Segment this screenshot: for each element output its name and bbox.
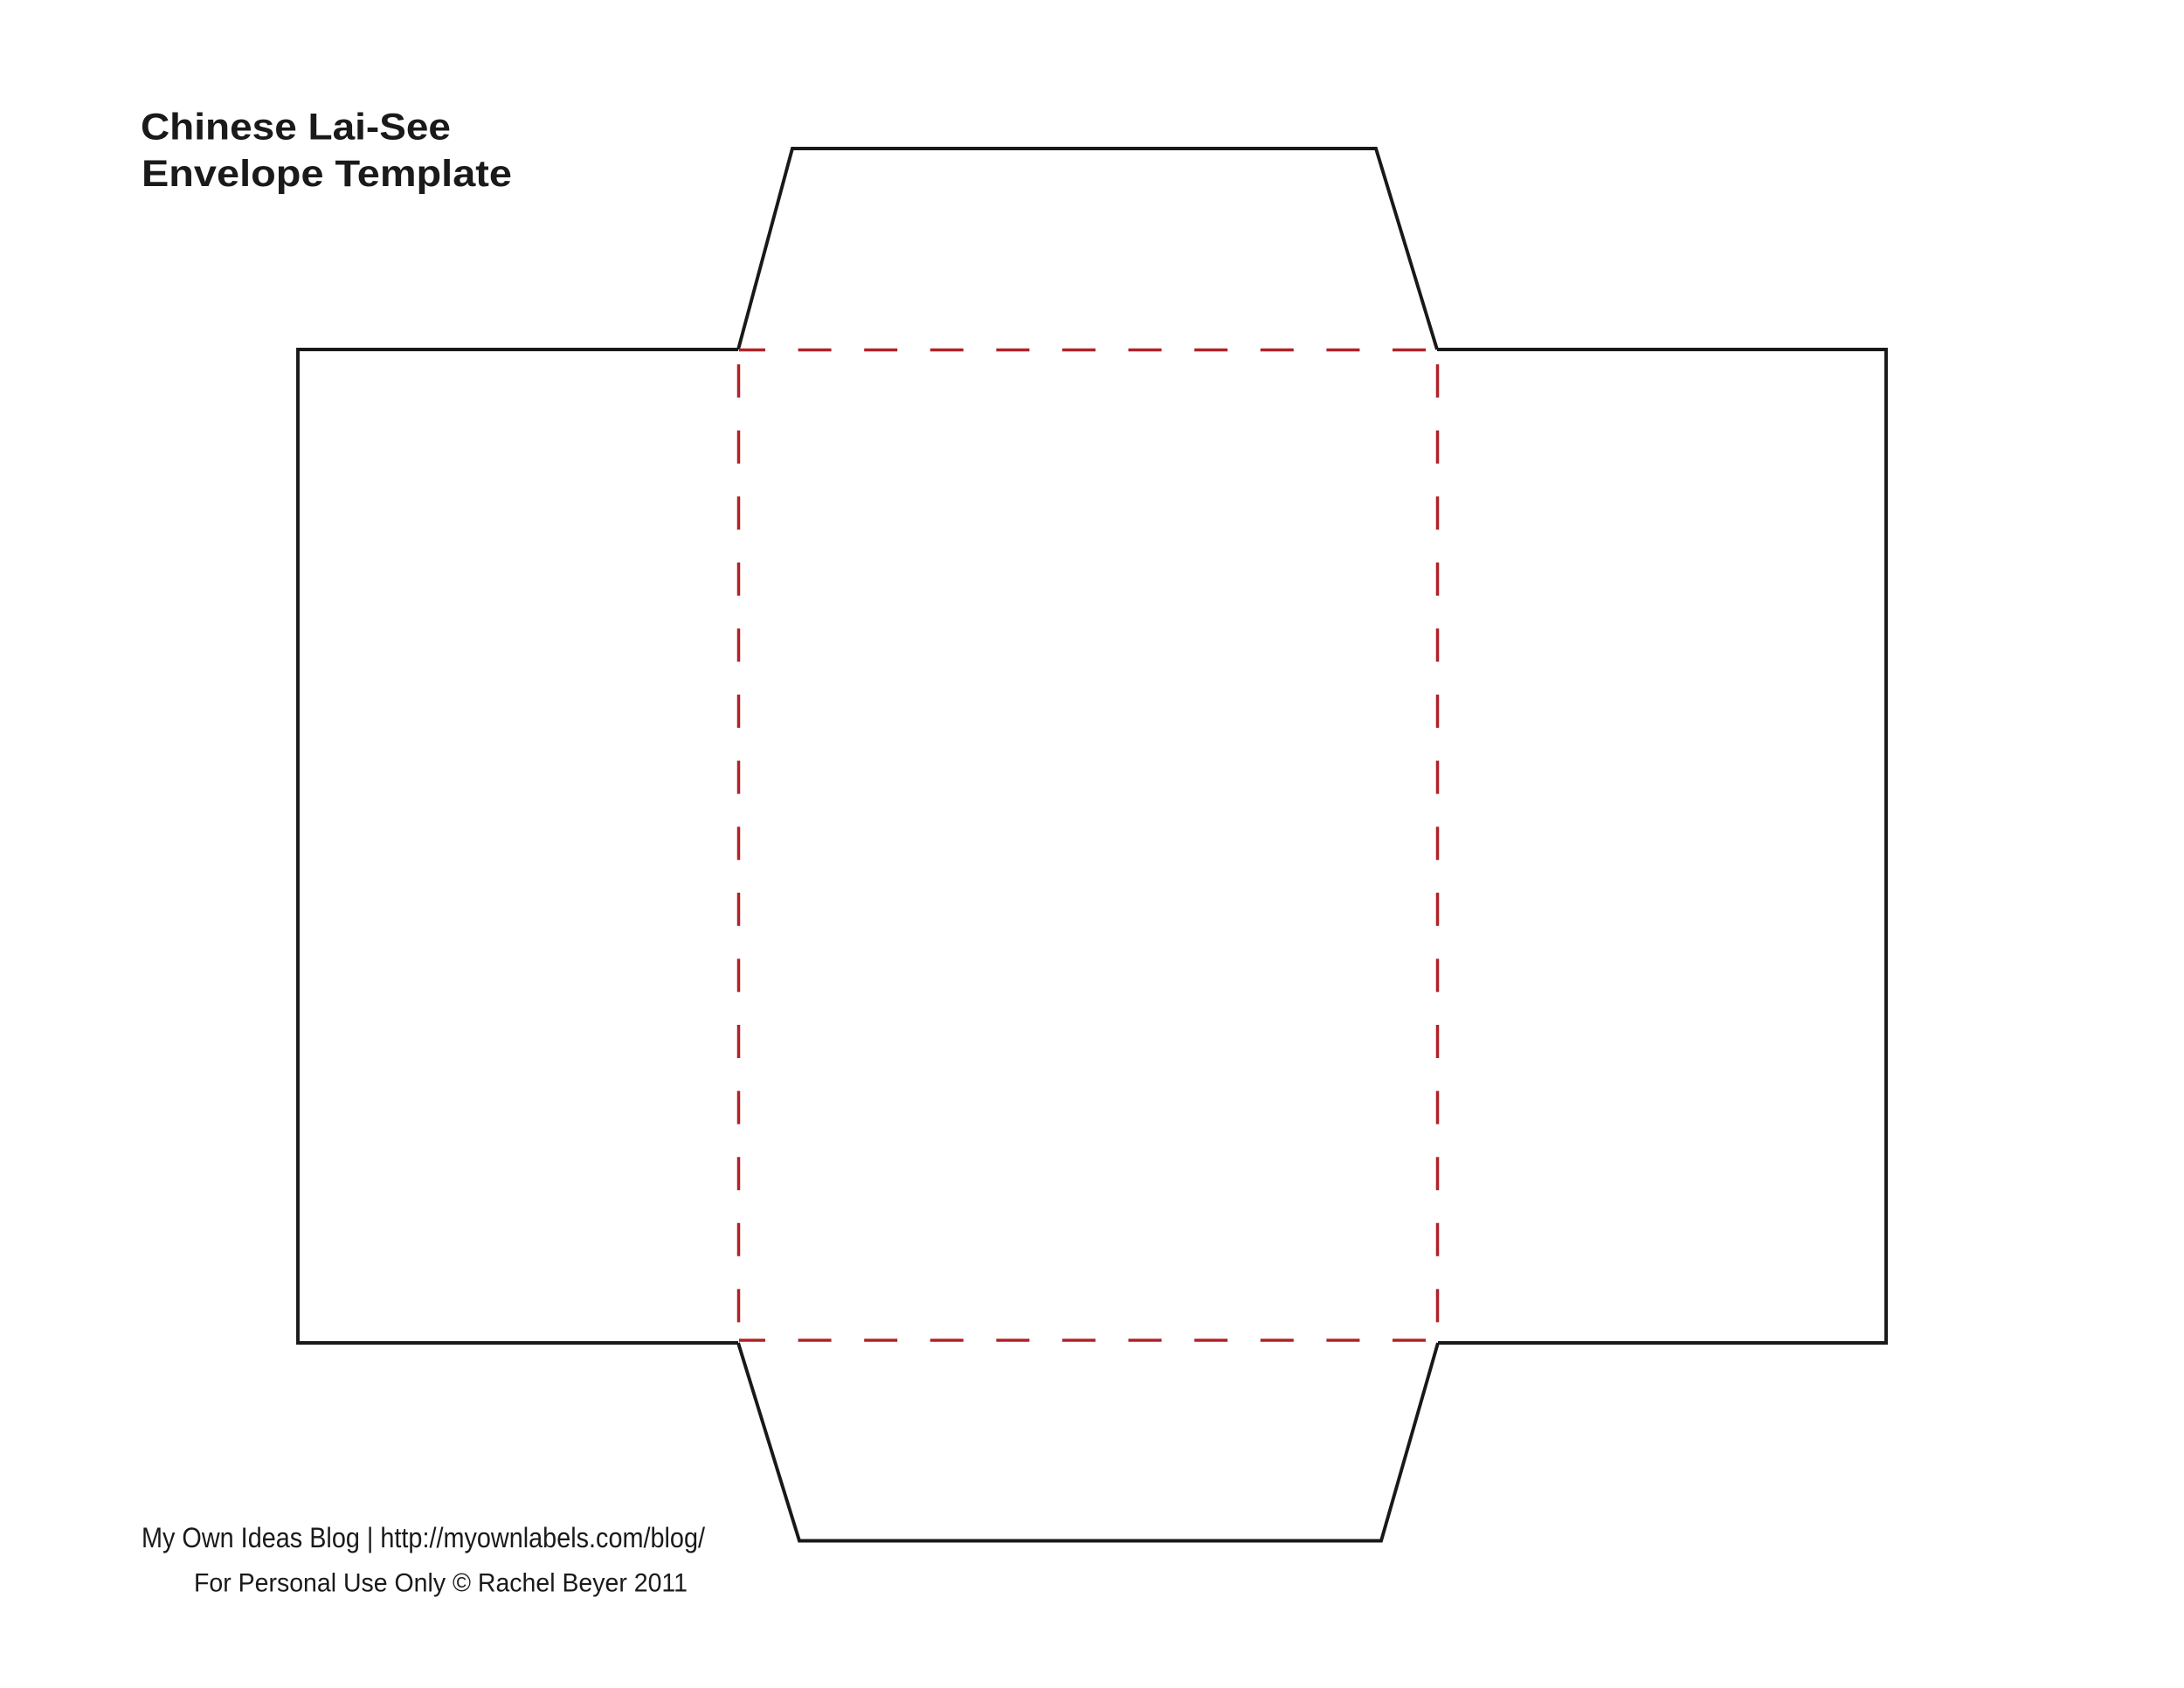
svg-text:For Personal Use Only © Rachel: For Personal Use Only © Rachel Beyer 201… xyxy=(194,1569,688,1598)
svg-text:Envelope Template: Envelope Template xyxy=(142,153,512,195)
svg-text:Chinese Lai-See: Chinese Lai-See xyxy=(141,107,451,149)
svg-text:My Own Ideas Blog | http://myo: My Own Ideas Blog | http://myownlabels.c… xyxy=(142,1522,705,1553)
